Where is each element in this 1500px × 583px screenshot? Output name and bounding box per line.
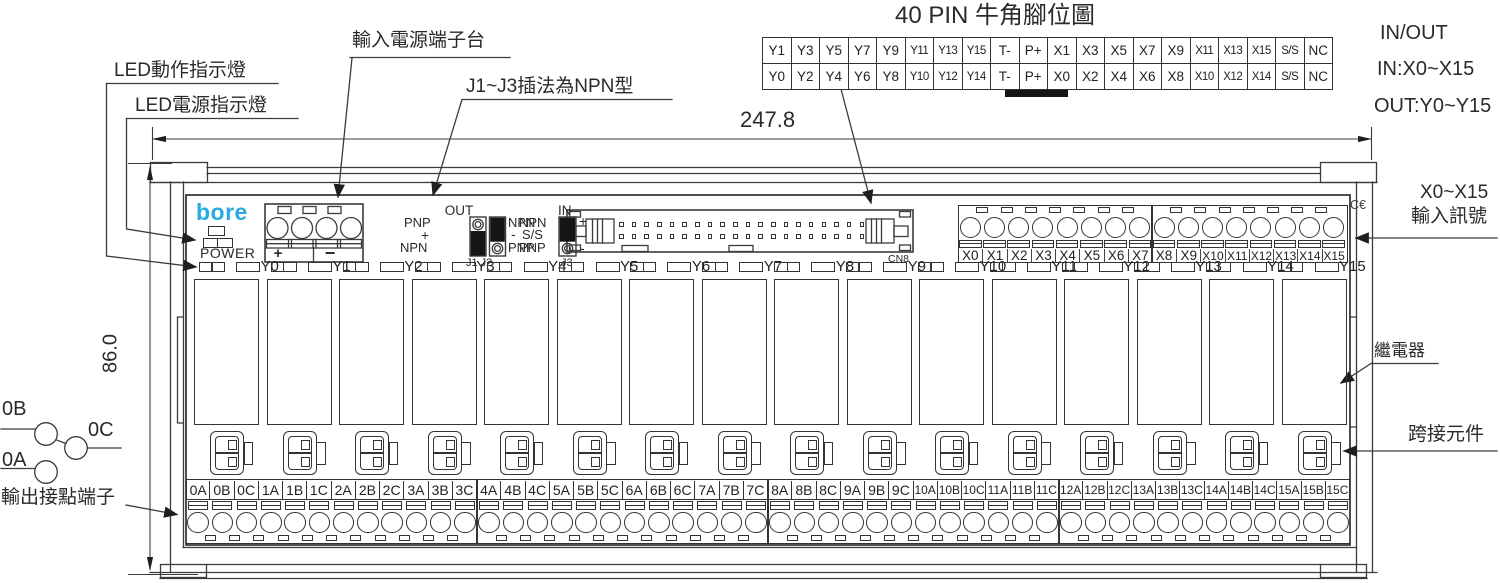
output-terminal-clamp-line xyxy=(406,505,426,506)
bridge-socket-tab xyxy=(316,442,326,465)
bridge-socket-divider xyxy=(724,452,746,453)
relay-body xyxy=(702,279,767,425)
brand-logo: bore xyxy=(196,199,248,225)
x-terminal-screw xyxy=(1299,217,1320,238)
x-terminal-screw xyxy=(1323,217,1344,238)
bridge-socket-tab xyxy=(244,442,254,465)
bridge-socket-tab xyxy=(1186,442,1196,465)
relay-led-indicator xyxy=(1218,262,1232,272)
output-terminal-clamp-line xyxy=(431,505,451,506)
output-terminal-foot xyxy=(932,535,943,541)
output-terminal-screw xyxy=(1279,512,1301,534)
relay-led-window xyxy=(667,262,691,272)
relay-led-window xyxy=(380,262,404,272)
bridge-socket-pin xyxy=(736,457,745,468)
output-terminal-foot xyxy=(787,535,798,541)
output-terminal-clamp-line xyxy=(237,505,257,506)
output-terminal-screw xyxy=(406,512,428,534)
pin-cell: Y8 xyxy=(877,64,906,90)
output-terminal-foot xyxy=(908,535,919,541)
output-terminal-clamp-line xyxy=(625,505,645,506)
output-terminal-screw xyxy=(745,512,767,534)
cn8-pin xyxy=(834,222,839,227)
output-terminal-foot xyxy=(326,535,337,541)
pin-cell: X5 xyxy=(1105,38,1134,64)
bridge-socket-pin xyxy=(1026,457,1035,468)
relay-led-indicator xyxy=(715,262,729,272)
bridge-socket-divider xyxy=(216,452,238,453)
output-terminal-screw xyxy=(454,512,476,534)
output-terminal-label: 5C xyxy=(598,481,622,500)
cn8-pin xyxy=(644,222,649,227)
output-terminal-foot xyxy=(496,535,507,541)
output-terminal-foot xyxy=(205,535,216,541)
output-terminal-clamp-line xyxy=(1061,505,1081,506)
relay-body xyxy=(1209,279,1274,425)
output-terminal-clamp-line xyxy=(1255,505,1275,506)
output-terminal-foot xyxy=(520,535,531,541)
output-terminal-foot xyxy=(1223,535,1234,541)
output-terminal-label: 11A xyxy=(986,481,1010,500)
output-terminal-clamp-line xyxy=(382,505,402,506)
cn8-pin xyxy=(809,222,814,227)
output-terminal-label: 1A xyxy=(259,481,283,500)
output-terminal-screw xyxy=(842,512,864,534)
output-terminal-clamp-line xyxy=(576,505,596,506)
x-terminal-label: X2 xyxy=(1007,249,1031,264)
bridge-socket-tab xyxy=(606,442,616,465)
output-terminal-clamp-line xyxy=(794,505,814,506)
output-terminal-label: 13B xyxy=(1156,481,1180,500)
relay-led-window xyxy=(308,262,332,272)
bridge-socket-pin xyxy=(1171,457,1180,468)
x-terminal-screw xyxy=(960,217,981,238)
output-terminal-foot xyxy=(884,535,895,541)
pin-cell: Y0 xyxy=(763,64,792,90)
output-terminal-clamp-line xyxy=(503,505,523,506)
pin-cell: Y1 xyxy=(763,38,792,64)
cn8-pin xyxy=(670,222,675,227)
cn8-pin xyxy=(784,222,789,227)
output-terminal-screw xyxy=(963,512,985,534)
output-terminal-label: 2A xyxy=(332,481,356,500)
cn8-pin xyxy=(720,222,725,227)
relay-led-indicator xyxy=(858,262,872,272)
output-terminal-foot xyxy=(981,535,992,541)
bridge-socket-pin xyxy=(1243,440,1252,451)
output-terminal-label: 6A xyxy=(623,481,647,500)
callout-led-power: LED電源指示燈 xyxy=(135,95,267,117)
relay-body xyxy=(412,279,477,425)
output-terminal-label: 0B xyxy=(210,481,234,500)
output-terminal-label: 10A xyxy=(914,481,938,500)
output-terminal-label: 11B xyxy=(1011,481,1035,500)
relay-body xyxy=(1137,279,1202,425)
output-terminal-foot xyxy=(714,535,725,541)
relay-body xyxy=(339,279,404,425)
output-terminal-screw xyxy=(212,512,234,534)
cn8-pin xyxy=(695,234,700,239)
output-terminal-label: 8A xyxy=(768,481,792,500)
bridge-socket-pin xyxy=(373,457,382,468)
bridge-socket-pin xyxy=(736,440,745,451)
output-terminal-screw xyxy=(284,512,306,534)
bridge-socket-pin xyxy=(1171,440,1180,451)
pin-cell: X4 xyxy=(1105,64,1134,90)
cn8-pin xyxy=(796,222,801,227)
output-terminal-screw xyxy=(939,512,961,534)
output-terminal-clamp-line xyxy=(1279,505,1299,506)
bridge-socket-divider xyxy=(506,452,528,453)
relay-led-indicator xyxy=(1074,262,1088,272)
cn8-pin xyxy=(758,222,763,227)
x-terminal-screw xyxy=(1105,217,1126,238)
x-terminal-indicator xyxy=(976,207,988,213)
output-terminal-clamp-line xyxy=(1182,505,1202,506)
pin-cell: Y11 xyxy=(906,38,935,64)
callout-jumper-note: J1~J3插法為NPN型 xyxy=(466,76,633,98)
cn8-pin xyxy=(632,234,637,239)
x-terminal-indicator xyxy=(1049,207,1061,213)
output-terminal-foot xyxy=(375,535,386,541)
pin-cell: Y2 xyxy=(792,64,821,90)
x-terminal-indicator xyxy=(1025,207,1037,213)
output-terminal-label: 8B xyxy=(792,481,816,500)
pin-cell: X8 xyxy=(1162,64,1191,90)
output-terminal-foot xyxy=(957,535,968,541)
relay-module-datasheet-diagram: 40 PIN 牛角腳位圖 IN/OUT IN:X0~X15 OUT:Y0~Y15… xyxy=(0,0,1500,583)
bridge-socket-tab xyxy=(534,442,544,465)
output-terminal-foot xyxy=(1102,535,1113,541)
x-terminal-clamp-line xyxy=(1056,243,1079,244)
pin-table: Y1Y3Y5Y7Y9Y11Y13Y15T-P+X1X3X5X7X9X11X13X… xyxy=(762,37,1333,90)
bridge-socket-pin xyxy=(228,440,237,451)
page-title: 40 PIN 牛角腳位圖 xyxy=(855,2,1135,30)
pin-cell: Y7 xyxy=(849,38,878,64)
output-terminal-label: 5B xyxy=(574,481,598,500)
cn8-pin xyxy=(670,234,675,239)
output-terminal-foot xyxy=(835,535,846,541)
bridge-socket-pin xyxy=(301,440,310,451)
cn8-pin xyxy=(619,234,624,239)
bridge-socket-pin xyxy=(953,457,962,468)
output-terminal-screw xyxy=(1182,512,1204,534)
pin-cell: P+ xyxy=(1020,38,1049,64)
output-terminal-label: 13A xyxy=(1132,481,1156,500)
pin-cell: X7 xyxy=(1134,38,1163,64)
output-terminal-screw xyxy=(697,512,719,534)
bridge-socket-pin xyxy=(881,457,890,468)
output-terminal-label: 14C xyxy=(1253,481,1277,500)
bridge-socket-pin xyxy=(228,457,237,468)
pin-cell: X9 xyxy=(1162,38,1191,64)
pin-cell: X2 xyxy=(1077,64,1106,90)
x-terminal-clamp-line xyxy=(1129,243,1152,244)
x-terminal-label: X0 xyxy=(958,249,982,264)
dimension-width: 247.8 xyxy=(740,107,795,132)
output-terminal-clamp-line xyxy=(528,505,548,506)
x-terminal-clamp-line xyxy=(1298,243,1321,244)
output-terminal-clamp-line xyxy=(334,505,354,506)
output-terminal-clamp-line xyxy=(673,505,693,506)
relay-led-window xyxy=(955,262,979,272)
pin-cell: X0 xyxy=(1048,64,1077,90)
relay-led-indicator xyxy=(1146,262,1160,272)
output-terminal-label: 9B xyxy=(865,481,889,500)
relay-led-window xyxy=(883,262,907,272)
output-terminal-label: 1C xyxy=(307,481,331,500)
pin-cell: Y3 xyxy=(792,38,821,64)
x-terminal-screw xyxy=(1202,217,1223,238)
output-terminal-label: 0A xyxy=(186,481,210,500)
x-terminal-clamp-line xyxy=(959,243,982,244)
relay-body xyxy=(847,279,912,425)
pin-cell: X3 xyxy=(1077,38,1106,64)
output-terminal-foot xyxy=(229,535,240,541)
output-terminal-clamp-line xyxy=(309,505,329,506)
output-terminal-clamp-line xyxy=(455,505,475,506)
contact-label-c: 0C xyxy=(88,419,114,442)
callout-output-contact: 輸出接點端子 xyxy=(1,487,115,509)
x-terminal-label: X5 xyxy=(1079,249,1103,264)
bridge-socket-divider xyxy=(361,452,383,453)
output-terminal-clamp-line xyxy=(843,505,863,506)
cn8-pin xyxy=(733,222,738,227)
relay-body xyxy=(629,279,694,425)
cn8-pin xyxy=(834,234,839,239)
output-terminal-screw xyxy=(672,512,694,534)
output-terminal-screw xyxy=(357,512,379,534)
output-terminal-label: 10C xyxy=(962,481,986,500)
cn8-pin xyxy=(796,234,801,239)
x-terminal-clamp-line xyxy=(1225,243,1248,244)
bridge-socket-tab xyxy=(751,442,761,465)
x-terminal-indicator xyxy=(1001,207,1013,213)
cn8-pin xyxy=(847,222,852,227)
relay-led-indicator xyxy=(427,262,441,272)
relay-body xyxy=(267,279,332,425)
pin-cell: X15 xyxy=(1248,38,1277,64)
x-terminal-indicator xyxy=(1315,207,1327,213)
cn8-pin xyxy=(809,234,814,239)
output-terminal-clamp-line xyxy=(1013,505,1033,506)
pin-cell: Y5 xyxy=(820,38,849,64)
output-terminal-label: 1B xyxy=(283,481,307,500)
bridge-socket-pin xyxy=(1098,440,1107,451)
bridge-socket-pin xyxy=(881,440,890,451)
x-terminal-screw xyxy=(1081,217,1102,238)
output-terminal-label: 6B xyxy=(647,481,671,500)
bridge-socket-tab xyxy=(389,442,399,465)
output-terminal-foot xyxy=(617,535,628,541)
bridge-socket-tab xyxy=(679,442,689,465)
x-terminal-indicator xyxy=(1194,207,1206,213)
bridge-socket-pin xyxy=(953,440,962,451)
bridge-socket-tab xyxy=(896,442,906,465)
output-terminal-clamp-line xyxy=(212,505,232,506)
x-terminal-screw xyxy=(1275,217,1296,238)
cn8-pin xyxy=(632,222,637,227)
output-terminal-screw xyxy=(600,512,622,534)
relay-led-window xyxy=(596,262,620,272)
pin-cell: S/S xyxy=(1276,64,1305,90)
output-terminal-clamp-line xyxy=(1037,505,1057,506)
x-terminal-label: X1 xyxy=(982,249,1006,264)
cn8-pin xyxy=(860,222,865,227)
output-terminal-label: 12B xyxy=(1083,481,1107,500)
relay-led-indicator xyxy=(283,262,297,272)
cn8-pin xyxy=(657,222,662,227)
cn8-pin xyxy=(682,234,687,239)
bridge-socket-pin xyxy=(1026,440,1035,451)
output-terminal-clamp-line xyxy=(1158,505,1178,506)
bridge-socket-pin xyxy=(808,440,817,451)
output-terminal-label: 2B xyxy=(356,481,380,500)
x-terminal-clamp-line xyxy=(1322,243,1345,244)
output-terminal-label: 0C xyxy=(235,481,259,500)
output-terminal-foot xyxy=(253,535,264,541)
cn8-pin xyxy=(746,222,751,227)
relay-led-window xyxy=(1099,262,1123,272)
output-terminal-foot xyxy=(690,535,701,541)
x-terminal-label: X6 xyxy=(1104,249,1128,264)
output-terminal-clamp-line xyxy=(1231,505,1251,506)
x-terminal-indicator xyxy=(1219,207,1231,213)
output-terminal-clamp-line xyxy=(261,505,281,506)
output-terminal-label: 3B xyxy=(429,481,453,500)
bridge-socket-pin xyxy=(808,457,817,468)
x-terminal-clamp-line xyxy=(1274,243,1297,244)
in-jumper-title: IN xyxy=(558,203,572,219)
output-terminal-foot xyxy=(811,535,822,541)
output-terminal-label: 14A xyxy=(1205,481,1229,500)
output-strip-bottom-line xyxy=(186,543,1350,544)
x-terminal-indicator xyxy=(1122,207,1134,213)
output-terminal-screw xyxy=(381,512,403,534)
output-terminal-label: 13C xyxy=(1180,481,1204,500)
relay-led-window xyxy=(739,262,763,272)
bridge-socket-tab xyxy=(969,442,979,465)
output-terminal-label: 11C xyxy=(1035,481,1059,500)
output-terminal-foot xyxy=(1296,535,1307,541)
out-jumper-label-npn-left: NPN xyxy=(400,241,427,256)
output-terminal-screw xyxy=(866,512,888,534)
output-terminal-foot xyxy=(1248,535,1259,541)
output-terminal-clamp-line xyxy=(940,505,960,506)
output-terminal-clamp-line xyxy=(479,505,499,506)
output-terminal-label: 4C xyxy=(526,481,550,500)
output-terminal-label: 15C xyxy=(1326,481,1350,500)
bridge-socket-divider xyxy=(651,452,673,453)
output-terminal-foot xyxy=(569,535,580,541)
x-terminal-indicator xyxy=(1243,207,1255,213)
pin-cell: X13 xyxy=(1219,38,1248,64)
x-terminal-indicator xyxy=(1267,207,1279,213)
output-terminal-label: 15A xyxy=(1277,481,1301,500)
output-terminal-foot xyxy=(1126,535,1137,541)
callout-power-input: 輸入電源端子台 xyxy=(352,30,485,52)
bridge-socket-divider xyxy=(434,452,456,453)
bridge-socket-tab xyxy=(1114,442,1124,465)
bridge-socket-divider xyxy=(869,452,891,453)
cn8-pin xyxy=(784,234,789,239)
pin-cell: T- xyxy=(991,64,1020,90)
output-terminal-screw xyxy=(478,512,500,534)
relay-led-indicator xyxy=(571,262,585,272)
io-note-line1: IN/OUT xyxy=(1380,22,1448,45)
x-terminal-clamp-line xyxy=(1032,243,1055,244)
output-terminal-clamp-line xyxy=(552,505,572,506)
relay-body xyxy=(1064,279,1129,425)
output-terminal-label: 12A xyxy=(1059,481,1083,500)
pin-cell: Y6 xyxy=(849,64,878,90)
x-terminal-label: X4 xyxy=(1055,249,1079,264)
output-terminal-clamp-line xyxy=(1328,505,1348,506)
output-terminal-label: 5A xyxy=(550,481,574,500)
bridge-socket-pin xyxy=(301,457,310,468)
in-jumper-label-minus: - xyxy=(580,240,585,256)
output-terminal-clamp-line xyxy=(600,505,620,506)
output-terminal-screw xyxy=(1327,512,1349,534)
bridge-socket-pin xyxy=(1243,457,1252,468)
bridge-socket-pin xyxy=(1316,440,1325,451)
x-terminal-screw xyxy=(984,217,1005,238)
cn8-pin xyxy=(847,234,852,239)
output-terminal-label: 12C xyxy=(1108,481,1132,500)
output-strip-divider xyxy=(767,479,769,543)
output-terminal-foot xyxy=(423,535,434,541)
relay-body xyxy=(194,279,259,425)
x-terminal-label: X8 xyxy=(1152,249,1176,264)
relay-led-window xyxy=(452,262,476,272)
output-terminal-foot xyxy=(399,535,410,541)
pin-cell: X14 xyxy=(1248,64,1277,90)
output-terminal-clamp-line xyxy=(1085,505,1105,506)
output-terminal-foot xyxy=(350,535,361,541)
cn8-pin xyxy=(822,222,827,227)
bridge-socket-divider xyxy=(941,452,963,453)
output-terminal-label: 4B xyxy=(501,481,525,500)
callout-input-signal-line1: X0~X15 xyxy=(1420,182,1488,204)
x-terminal-clamp-line xyxy=(1177,243,1200,244)
cn8-pin xyxy=(720,234,725,239)
relay-body xyxy=(919,279,984,425)
output-terminal-clamp-line xyxy=(916,505,936,506)
bridge-socket-tab xyxy=(824,442,834,465)
cn8-pin xyxy=(822,234,827,239)
power-led xyxy=(208,226,225,236)
output-terminal-label: 15B xyxy=(1302,481,1326,500)
cn8-pin xyxy=(682,222,687,227)
output-terminal-foot xyxy=(1005,535,1016,541)
x-terminal-label: X9 xyxy=(1176,249,1200,264)
output-terminal-foot xyxy=(1078,535,1089,541)
output-terminal-clamp-line xyxy=(722,505,742,506)
output-terminal-screw xyxy=(503,512,525,534)
pin-cell: Y14 xyxy=(963,64,992,90)
output-terminal-foot xyxy=(278,535,289,541)
pin-cell: Y12 xyxy=(934,64,963,90)
pin-cell: Y9 xyxy=(877,38,906,64)
output-terminal-foot xyxy=(641,535,652,541)
in-jumper-label-pnp: PNP xyxy=(519,241,546,256)
relay-body xyxy=(774,279,839,425)
output-strip-divider xyxy=(476,479,478,543)
output-terminal-clamp-line xyxy=(358,505,378,506)
output-terminal-clamp-line xyxy=(988,505,1008,506)
cn8-pin xyxy=(758,234,763,239)
pin-cell: Y4 xyxy=(820,64,849,90)
